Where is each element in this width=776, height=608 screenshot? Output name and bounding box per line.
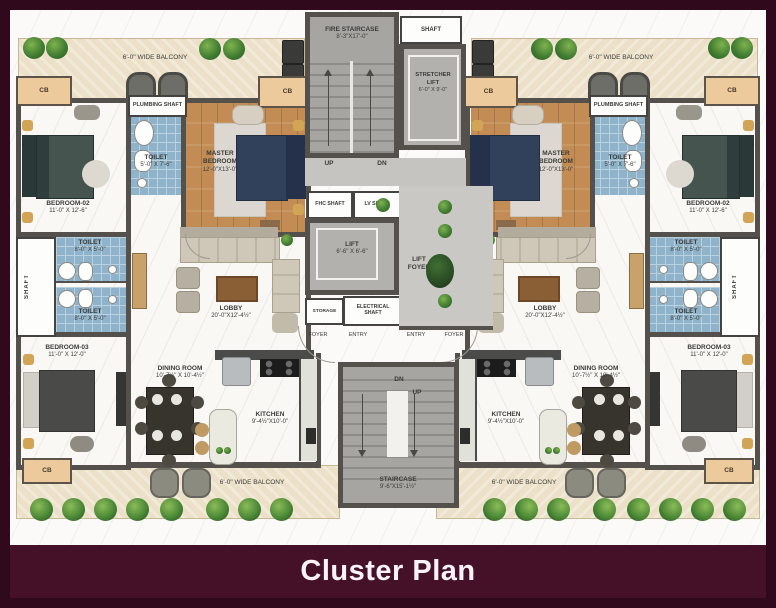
up-label: UP [314, 160, 344, 168]
plant-icon [281, 234, 293, 246]
shower-head [137, 178, 147, 188]
wall [126, 98, 131, 338]
shrub-icon [483, 498, 506, 521]
dining-chair [600, 454, 614, 467]
electrical-shaft-label: ELECTRICALSHAFT [357, 305, 390, 316]
plate [171, 394, 182, 405]
shrub-icon [238, 498, 261, 521]
wicker-chair [597, 468, 626, 498]
plant-icon [545, 447, 552, 454]
plumbing-shaft: PLUMBING SHAFT [589, 95, 648, 117]
stove [476, 359, 516, 377]
dn-label: DN [367, 160, 397, 168]
stair-landing-strip [387, 391, 408, 457]
utility-box [472, 40, 494, 64]
poster-frame: SHAFT CB CB CB PLUMBING SHAFT [0, 0, 776, 608]
bedroom-03-label: BEDROOM-0311'-0" X 12'-0" [27, 344, 107, 360]
master-bedroom-label: MASTERBEDROOM12'-0"X13'-0" [185, 150, 255, 175]
ottoman [682, 436, 706, 452]
foyer-label: FOYER [298, 332, 338, 339]
shrub-icon [723, 498, 746, 521]
dining-chair [628, 422, 641, 435]
foyer-label: FOYER [434, 332, 474, 339]
cupboard: CB [704, 76, 760, 106]
sink [622, 120, 642, 146]
armchair [576, 267, 600, 289]
shrub-icon [659, 498, 682, 521]
kitchen-counter-side [299, 359, 317, 461]
wc [78, 289, 93, 308]
bed-headboard [22, 135, 36, 197]
plant-icon [438, 200, 452, 214]
stool [567, 441, 581, 455]
shrub-icon [206, 498, 229, 521]
lobby-label: LOBBY20'-0"X12'-4½" [505, 305, 585, 321]
armchair [512, 105, 544, 125]
bedroom-02-label: BEDROOM-0211'-0" X 12'-6" [668, 200, 748, 216]
appliance [306, 428, 316, 444]
plant-icon [531, 38, 553, 60]
sink [134, 120, 154, 146]
floor-plan: SHAFT CB CB CB PLUMBING SHAFT [10, 10, 766, 545]
cupboard: CB [704, 458, 754, 484]
lamp [743, 120, 754, 131]
fhc-shaft: FHC SHAFT [307, 191, 353, 219]
dining-chair [162, 454, 176, 467]
plate [171, 430, 182, 441]
plant-icon [438, 294, 452, 308]
bed [39, 370, 95, 432]
plate [613, 394, 624, 405]
master-toilet-label: TOILET5'-0" X 7'-6" [592, 154, 648, 170]
tv-unit [116, 372, 126, 426]
sink [58, 262, 76, 280]
stair-dn-label: DN [384, 376, 414, 384]
coffee-table [216, 276, 258, 302]
appliance [460, 428, 470, 444]
stove [260, 359, 300, 377]
fire-staircase-label: FIRE STAIRCASE8'-3"X17'-0" [308, 26, 396, 42]
lamp [742, 438, 753, 449]
shower-head [108, 295, 117, 304]
stair-divider [350, 61, 353, 153]
top-shaft: SHAFT [400, 16, 462, 44]
bench [629, 253, 644, 309]
lobby-label: LOBBY20'-0"X12'-4½" [191, 305, 271, 321]
wall [645, 98, 650, 338]
entry-label: ENTRY [338, 332, 378, 339]
balcony-bottom-label: 6'-0" WIDE BALCONY [469, 479, 579, 487]
toilet-a-label: TOILET8'-0" X 5'-0" [60, 239, 120, 255]
wicker-chair [150, 468, 179, 498]
kitchen-counter-side [459, 359, 477, 461]
storage-label: STORAGE [313, 309, 337, 314]
stretcher-lift-cab [408, 55, 459, 141]
shower-head [629, 178, 639, 188]
plant-icon [731, 37, 753, 59]
lamp [23, 438, 34, 449]
top-shaft-label: SHAFT [421, 27, 441, 34]
plate [594, 430, 605, 441]
lamp [293, 120, 304, 131]
wall [399, 326, 493, 330]
shrub-icon [94, 498, 117, 521]
plant-icon [223, 38, 245, 60]
electrical-shaft: ELECTRICALSHAFT [343, 296, 403, 326]
sink [58, 290, 76, 308]
shrub-icon [593, 498, 616, 521]
plate [613, 430, 624, 441]
shrub-icon [160, 498, 183, 521]
shrub-icon [126, 498, 149, 521]
balcony-top-label: 6'-0" WIDE BALCONY [566, 54, 676, 62]
shrub-icon [627, 498, 650, 521]
sofa [272, 259, 300, 313]
plan-title: Cluster Plan [300, 555, 475, 588]
stair-up-label: UP [402, 389, 432, 397]
down-arrow [362, 394, 363, 450]
kitchen-label: KITCHEN9'-4½"X10'-0" [466, 411, 546, 427]
stool [567, 423, 581, 437]
bed-pillows [735, 372, 753, 428]
dining-chair [135, 396, 148, 409]
cupboard: CB [22, 458, 72, 484]
plumbing-shaft: PLUMBING SHAFT [128, 95, 187, 117]
dining-chair [191, 396, 204, 409]
side-shaft-label: SHAFT [732, 262, 752, 312]
lift-label: LIFT6'-6" X 6'-6" [311, 241, 393, 257]
shrub-icon [691, 498, 714, 521]
shrub-icon [547, 498, 570, 521]
stretcher-lift-label: STRETCHERLIFT6'-0" X 9'-0" [402, 72, 464, 94]
plant-icon [23, 37, 45, 59]
plant-icon [216, 447, 223, 454]
stool [195, 423, 209, 437]
plant-icon [438, 224, 452, 238]
staircase-label: STAIRCASE9'-6"X15'-1½" [348, 476, 448, 492]
entry-label: ENTRY [396, 332, 436, 339]
master-bedroom-label: MASTERBEDROOM12'-0"X13'-0" [521, 150, 591, 175]
sink [700, 262, 718, 280]
dining-room-label: DINING ROOM10'-7½" X 10'-4½" [140, 365, 220, 381]
rug [666, 160, 694, 188]
cupboard: CB [459, 76, 518, 108]
bed-pillows [286, 135, 306, 199]
apartment-unit-left: SHAFT CB CB CB PLUMBING SHAFT [10, 10, 340, 545]
bench [132, 253, 147, 309]
plant-icon [376, 198, 390, 212]
fhc-shaft-label: FHC SHAFT [315, 202, 344, 208]
shrub-icon [30, 498, 53, 521]
armchair [176, 267, 200, 289]
plant-icon [553, 447, 560, 454]
dining-chair [628, 396, 641, 409]
wall [56, 281, 126, 283]
toilet-b-label: TOILET8'-0" X 5'-0" [60, 308, 120, 324]
title-bar: Cluster Plan [10, 545, 766, 598]
bed [681, 370, 737, 432]
cupboard: CB [16, 76, 72, 106]
plant-icon [708, 37, 730, 59]
wc [683, 262, 698, 281]
planter-oval [426, 254, 454, 288]
chaise [272, 313, 298, 333]
plate [594, 394, 605, 405]
stool [195, 441, 209, 455]
lamp [472, 120, 483, 131]
shower-head [659, 265, 668, 274]
kitchen-label: KITCHEN9'-4½"X10'-0" [230, 411, 310, 427]
coffee-table [518, 276, 560, 302]
up-arrow [328, 76, 329, 146]
lamp [22, 120, 33, 131]
up-arrow [370, 76, 371, 146]
master-toilet-label: TOILET5'-0" X 7'-6" [128, 154, 184, 170]
dining-room-label: DINING ROOM10'-7½" X 10'-4½" [556, 365, 636, 381]
plate [152, 394, 163, 405]
balcony-top-label: 6'-0" WIDE BALCONY [100, 54, 210, 62]
wc [78, 262, 93, 281]
dining-chair [572, 396, 585, 409]
side-shaft-label: SHAFT [24, 262, 44, 312]
balcony-bottom-label: 6'-0" WIDE BALCONY [197, 479, 307, 487]
fridge [525, 357, 554, 386]
ottoman [70, 436, 94, 452]
wall [126, 332, 131, 470]
bed-headboard [740, 135, 754, 197]
bedroom-03-label: BEDROOM-0311'-0" X 12'-0" [669, 344, 749, 360]
shower-head [108, 265, 117, 274]
ottoman [676, 105, 702, 120]
utility-box [282, 40, 304, 64]
wall [650, 281, 720, 283]
ottoman [74, 105, 100, 120]
shower-head [659, 295, 668, 304]
sink [700, 290, 718, 308]
rug [82, 160, 110, 188]
shrub-icon [62, 498, 85, 521]
storage: STORAGE [305, 298, 344, 325]
plate [152, 430, 163, 441]
down-arrow [414, 394, 415, 450]
fridge [222, 357, 251, 386]
wc [683, 289, 698, 308]
bedroom-02-label: BEDROOM-0211'-0" X 12'-6" [28, 200, 108, 216]
tv-unit [650, 372, 660, 426]
toilet-b-label: TOILET8'-0" X 5'-0" [656, 308, 716, 324]
dining-chair [135, 422, 148, 435]
stretcher-lift [399, 44, 466, 150]
toilet-a-label: TOILET8'-0" X 5'-0" [656, 239, 716, 255]
shrub-icon [270, 498, 293, 521]
shrub-icon [515, 498, 538, 521]
armchair [232, 105, 264, 125]
plant-icon [224, 447, 231, 454]
lamp [293, 204, 304, 215]
plant-icon [46, 37, 68, 59]
